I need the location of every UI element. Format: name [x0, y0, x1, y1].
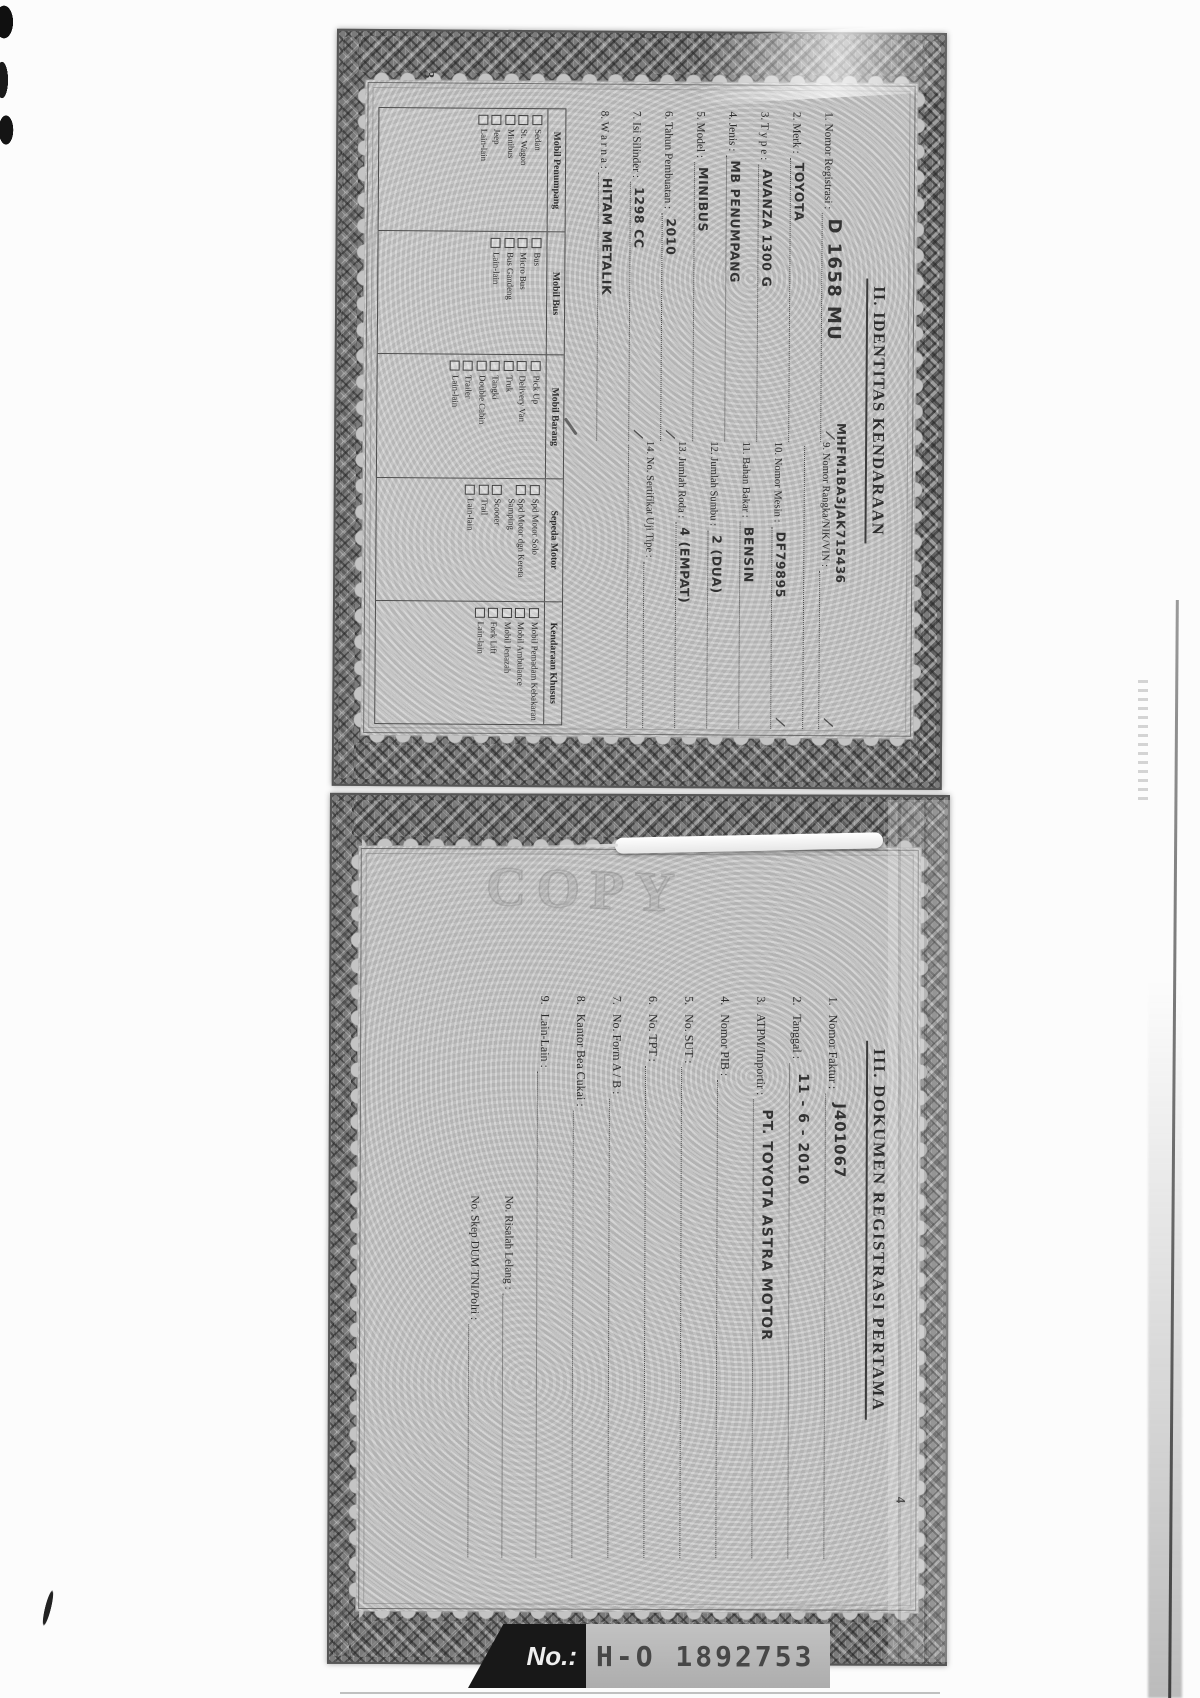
field-label: 8. W a r n a :	[598, 111, 610, 169]
checkbox	[502, 608, 512, 618]
serial-label: No.:	[468, 1624, 586, 1688]
vehicle-category-column: Mobil BarangPick UpDelivery VanTrukTangk…	[377, 353, 564, 477]
field-value-handwritten: 4 (EMPAT)	[677, 527, 693, 603]
checkbox-label: Double Cabin	[476, 375, 487, 424]
category-item: Spd Motor Solo	[529, 485, 541, 598]
checkbox-label: Pick Up	[530, 376, 541, 405]
checkbox-label: Micro Bus	[518, 252, 529, 289]
category-item: Pick Up	[530, 362, 542, 475]
field-row: 13. Jumlah Roda :4 (EMPAT)	[674, 441, 708, 728]
field-dotted-line: 1298 CC/	[628, 182, 646, 441]
field-value-handwritten: PT. TOYOTA ASTRA MOTOR	[758, 1109, 775, 1341]
field-dotted-line: MB PENUMPANG	[724, 155, 742, 441]
field-label: 9. Lain-Lain :	[537, 996, 552, 1068]
vehicle-category-column: Mobil PenumpangSedanSt. WagonMinibusJeep…	[379, 108, 566, 231]
pen-tick: /	[772, 718, 788, 726]
category-items: SedanSt. WagonMinibusJeepLain-lain	[473, 109, 547, 232]
category-item: Lain-lain	[449, 361, 461, 474]
category-items: Pick UpDelivery VanTrukTangkiDouble Cabi…	[444, 355, 545, 478]
border-pattern	[333, 801, 352, 1656]
category-header: Sepeda Motor	[544, 479, 563, 601]
checkbox	[504, 238, 514, 248]
checkbox	[519, 115, 529, 125]
checkbox	[490, 361, 500, 371]
category-items: BusMicro BusBus GandengLain-lain	[486, 232, 547, 355]
category-header: Mobil Bus	[546, 232, 565, 354]
category-item: St. Wagon	[518, 115, 530, 228]
field-value-handwritten: 2010	[663, 218, 678, 255]
checkbox-label: St. Wagon	[519, 129, 530, 165]
registration-fields: 1. Nomor Faktur :J4010672. Tanggal :11 -…	[535, 996, 861, 1559]
field-dotted-line: AVANZA 1300 G	[756, 164, 774, 442]
checkbox-label: Lain-lain	[465, 498, 476, 530]
border-pattern	[356, 743, 918, 783]
checkbox-label: Scooter	[492, 498, 503, 525]
scan-shadow-line	[340, 1692, 940, 1694]
field-row: 2. Merk :TOYOTA	[788, 112, 822, 442]
checkbox-label: Minibus	[505, 129, 516, 158]
field-value-handwritten: 11 - 6 - 2010	[795, 1073, 811, 1185]
pen-tick: /	[820, 719, 836, 727]
field-value-handwritten: D 1658 MU	[823, 218, 845, 341]
serial-number-strip: No.: H-O 1892753	[468, 1624, 830, 1688]
field-dotted-line	[535, 1072, 553, 1558]
field-row: 10. Nomor Mesin :DF79895/	[770, 442, 804, 729]
section-title: III. DOKUMEN REGISTRASI PERTAMA	[867, 847, 890, 1614]
checkbox-label: Mobil Jenazah	[502, 622, 513, 674]
field-value-handwritten: 1298 CC	[631, 187, 646, 249]
field-value-handwritten: DF79895	[773, 531, 788, 598]
field-dotted-line: MINIBUS	[692, 162, 710, 441]
checkbox	[515, 608, 525, 618]
vehicle-category-column: Mobil BusBusMicro BusBus GandengLain-lai…	[378, 230, 565, 354]
category-items: Spd Motor SoloSpd Motor dgn Kereta Sampi…	[460, 478, 545, 601]
checkbox	[531, 238, 541, 248]
checkbox-label: Lain-lain	[491, 252, 502, 284]
field-dotted-line	[715, 1080, 733, 1558]
field-row: 6. Tahun Pembuatan :2010/	[660, 111, 694, 441]
field-value-handwritten: AVANZA 1300 G	[759, 169, 775, 287]
category-item: Jeep	[491, 115, 503, 228]
field-label: 3. ATPM/Importir :	[753, 996, 768, 1095]
field-label: 5. Model :	[694, 111, 706, 158]
checkbox	[477, 361, 487, 371]
checkbox-label: Mobil Pemadam Kebakaran	[528, 622, 540, 721]
field-row: 1. Nomor Registrasi :D 1658 MU/	[820, 112, 854, 442]
checkbox	[465, 484, 475, 494]
field-label: 2. Tanggal :	[789, 996, 804, 1059]
category-item: Lain-lain	[490, 238, 502, 351]
checkbox	[517, 361, 527, 371]
field-dotted-line	[679, 1068, 697, 1559]
field-dotted-line: 11 - 6 - 2010	[787, 1063, 805, 1558]
vehicle-fields-left: 1. Nomor Registrasi :D 1658 MU/2. Merk :…	[596, 111, 854, 443]
field-dotted-line: BENSIN	[738, 522, 755, 729]
field-extra-line	[802, 442, 820, 729]
ink-mark	[32, 1573, 64, 1643]
field-dotted-line: 4 (EMPAT)	[674, 522, 691, 728]
field-dotted-line: PT. TOYOTA ASTRA MOTOR	[751, 1099, 769, 1558]
checkbox	[529, 608, 539, 618]
field-dotted-line	[501, 1294, 518, 1558]
category-item: Lain-lain	[464, 484, 476, 597]
field-label: No. Risalah Lelang :	[502, 1195, 514, 1289]
field-label: 8. Kantor Bea Cukai :	[573, 996, 588, 1107]
checkbox	[478, 484, 488, 494]
field-dotted-line: TOYOTA	[788, 158, 806, 442]
field-dotted-line: 2 (DUA)	[706, 530, 723, 728]
category-item: Bus Gandeng	[504, 238, 516, 351]
scan-faint-marks	[1138, 680, 1148, 800]
field-label: 1. Nomor Registrasi :	[822, 112, 835, 209]
field-row: 5. No. SUT :	[679, 996, 717, 1558]
category-item: Bus	[531, 238, 543, 351]
pen-tick: /	[630, 430, 646, 438]
checkbox-label: Delivery Van	[517, 375, 528, 422]
checkbox	[516, 485, 526, 495]
certificate-panel: II. IDENTITAS KENDARAAN 1. Nomor Registr…	[360, 79, 919, 740]
category-item: Mobil Pemadam Kebakaran	[528, 608, 540, 721]
field-dotted-line: D 1658 MU/	[820, 213, 838, 442]
field-label: 2. Merk :	[790, 112, 802, 154]
field-dotted-line: HITAM METALIK	[596, 173, 614, 441]
field-value-handwritten: TOYOTA	[792, 163, 807, 222]
category-header: Mobil Barang	[545, 356, 564, 478]
category-item: Tangki	[489, 361, 501, 474]
field-row: 9. Lain-Lain :	[535, 996, 573, 1558]
field-extra-line	[626, 441, 644, 728]
field-row: 4. Nomor PIB :	[715, 996, 753, 1558]
field-row: 7. Isi Silinder :1298 CC/	[628, 111, 662, 441]
copy-watermark: COPY	[485, 855, 686, 926]
field-row: 12. Jumlah Sumbu :2 (DUA)	[706, 441, 740, 728]
field-dotted-line	[607, 1098, 625, 1557]
pen-mark	[564, 417, 578, 435]
field-row: 4. Jenis :MB PENUMPANG	[724, 111, 758, 441]
field-row: 7. No. Form A / B :	[607, 996, 645, 1558]
category-item: Mobil Ambulance	[515, 608, 527, 721]
field-label: 4. Nomor PIB :	[717, 996, 732, 1076]
field-row: 11. Bahan Bakar :BENSIN	[738, 442, 772, 729]
pen-tick: /	[662, 431, 678, 439]
checkbox	[491, 238, 501, 248]
field-value-handwritten: 2 (DUA)	[709, 535, 724, 594]
page-number-4: 4	[892, 1497, 908, 1504]
checkbox-label: Bus Gandeng	[504, 252, 515, 300]
category-item: Sedan	[532, 115, 544, 228]
category-item: Micro Bus	[517, 238, 529, 351]
checkbox	[492, 484, 502, 494]
field-row: 6. No. TPT :	[643, 996, 681, 1558]
section-title-text: II. IDENTITAS KENDARAAN	[864, 278, 889, 544]
field-dotted-line	[643, 1066, 661, 1558]
checkbox	[450, 361, 460, 371]
category-items: Mobil Pemadam KebakaranMobil AmbulanceMo…	[470, 601, 544, 724]
checkbox	[463, 361, 473, 371]
checkbox-label: Spd Motor dgn Kereta Samping	[505, 499, 528, 598]
checkbox	[475, 608, 485, 618]
field-row: 3. ATPM/Importir :PT. TOYOTA ASTRA MOTOR	[751, 996, 789, 1558]
field-label: 12. Jumlah Sumbu :	[708, 441, 720, 526]
category-item: Lain-lain	[478, 115, 490, 228]
field-dotted-line: J401067	[823, 1093, 841, 1558]
field-row: 14. No. Sertifikat Uji Tipe :	[642, 441, 676, 728]
category-item: Lain-lain	[474, 608, 486, 721]
certificate-panel: III. DOKUMEN REGISTRASI PERTAMA 1. Nomor…	[355, 845, 922, 1614]
category-header: Mobil Penumpang	[547, 109, 566, 231]
field-row: 2. Tanggal :11 - 6 - 2010	[787, 996, 825, 1558]
category-header: Kendaraan Khusus	[543, 602, 562, 724]
vehicle-category-column: Sepeda MotorSpd Motor SoloSpd Motor dgn …	[376, 477, 563, 601]
field-row: 9. Nomor Rangka/NIK/VIN :MHFM1BA3JAK7154…	[818, 442, 852, 729]
dotted-line	[626, 445, 644, 728]
field-value-handwritten: MB PENUMPANG	[727, 160, 743, 283]
field-row: 5. Model :MINIBUS	[692, 111, 726, 441]
category-item: Truk	[503, 361, 515, 474]
checkbox	[488, 608, 498, 618]
field-value-handwritten: BENSIN	[741, 527, 756, 583]
booklet-page-edges	[888, 800, 950, 1662]
checkbox-label: Tangki	[490, 375, 501, 399]
lain-lain-sub-fields: No. Risalah Lelang :No. Skep DUM TNI/Pol…	[467, 995, 537, 1557]
checkbox-label: Lain-lain	[449, 375, 460, 407]
page-number-3: 3	[419, 71, 436, 79]
field-row: 1. Nomor Faktur :J401067	[823, 997, 861, 1559]
dotted-line	[802, 446, 820, 729]
field-value-handwritten: MINIBUS	[696, 167, 711, 232]
field-row: 8. Kantor Bea Cukai :	[571, 996, 609, 1558]
scan-glare	[698, 24, 951, 105]
field-label: 6. No. TPT :	[645, 996, 660, 1062]
vehicle-category-column: Kendaraan KhususMobil Pemadam KebakaranM…	[375, 600, 562, 724]
field-label: 7. No. Form A / B :	[609, 996, 624, 1095]
checkbox-label: Trailer	[463, 375, 474, 399]
field-label: 4. Jenis :	[726, 111, 738, 151]
checkbox-label: Fork Lift	[488, 622, 499, 654]
checkbox-label: Mobil Ambulance	[515, 622, 526, 686]
category-item: Spd Motor dgn Kereta Samping	[505, 485, 528, 598]
scan-tear-artifact	[0, 0, 32, 150]
checkbox-label: Jeep	[492, 129, 503, 145]
field-label: No. Skep DUM TNI/Polri :	[468, 1195, 480, 1320]
page-identitas-kendaraan: II. IDENTITAS KENDARAAN 1. Nomor Registr…	[332, 29, 947, 790]
field-dotted-line	[467, 1324, 484, 1557]
field-label: 9. Nomor Rangka/NIK/VIN :	[819, 442, 831, 567]
field-value-handwritten: HITAM METALIK	[599, 178, 615, 296]
section-title: II. IDENTITAS KENDARAAN	[866, 82, 891, 739]
field-row: No. Skep DUM TNI/Polri :	[467, 1195, 502, 1557]
category-item: Trail	[478, 484, 490, 597]
category-item: Minibus	[505, 115, 517, 228]
category-item: Scooter	[491, 484, 503, 597]
field-row: 3. T y p e :AVANZA 1300 G	[756, 112, 790, 442]
field-value-handwritten: J401067	[831, 1103, 849, 1178]
section-title-text: III. DOKUMEN REGISTRASI PERTAMA	[865, 1041, 889, 1420]
field-dotted-line: MHFM1BA3JAK715436/	[818, 571, 835, 729]
checkbox	[505, 115, 515, 125]
scan-edge-smudge	[1148, 980, 1182, 1698]
field-label: 3. T y p e :	[758, 112, 770, 161]
field-dotted-line	[571, 1111, 589, 1558]
field-label: 14. No. Sertifikat Uji Tipe :	[643, 441, 655, 558]
field-dotted-line	[642, 562, 659, 728]
checkbox-label: Bus	[531, 252, 542, 266]
category-item: Fork Lift	[488, 608, 500, 721]
category-item: Delivery Van	[516, 361, 528, 474]
field-value-handwritten: MHFM1BA3JAK715436	[833, 423, 848, 584]
checkbox-label: Trail	[478, 498, 489, 515]
checkbox	[531, 362, 541, 372]
vehicle-fields-right: 9. Nomor Rangka/NIK/VIN :MHFM1BA3JAK7154…	[626, 441, 852, 730]
field-label: 7. Isi Silinder :	[630, 111, 642, 178]
vehicle-category-table: Mobil PenumpangSedanSt. WagonMinibusJeep…	[374, 107, 566, 725]
checkbox	[492, 115, 502, 125]
category-item: Trailer	[462, 361, 474, 474]
checkbox-label: Truk	[503, 375, 514, 392]
category-item: Double Cabin	[476, 361, 488, 474]
field-dotted-line: DF79895/	[770, 526, 787, 728]
checkbox-label: Sedan	[532, 129, 543, 151]
checkbox	[504, 361, 514, 371]
checkbox	[518, 238, 528, 248]
checkbox-label: Lain-lain	[475, 622, 486, 654]
field-label: 5. No. SUT :	[681, 996, 696, 1064]
checkbox	[530, 485, 540, 495]
field-label: 11. Bahan Bakar :	[740, 442, 752, 518]
checkbox	[478, 115, 488, 125]
checkbox	[532, 115, 542, 125]
field-row: No. Risalah Lelang :	[501, 1195, 536, 1557]
field-label: 6. Tahun Pembuatan :	[662, 111, 675, 209]
checkbox-label: Lain-lain	[478, 129, 489, 161]
field-row: 8. W a r n a :HITAM METALIK	[596, 111, 630, 441]
checkbox-label: Spd Motor Solo	[529, 499, 540, 555]
field-label: 13. Jumlah Roda :	[676, 441, 688, 518]
field-dotted-line: 2010/	[660, 213, 678, 441]
field-label: 10. Nomor Mesin :	[772, 442, 784, 523]
category-item: Mobil Jenazah	[501, 608, 513, 721]
serial-number: H-O 1892753	[586, 1624, 830, 1688]
field-label: 1. Nomor Faktur :	[825, 997, 840, 1090]
